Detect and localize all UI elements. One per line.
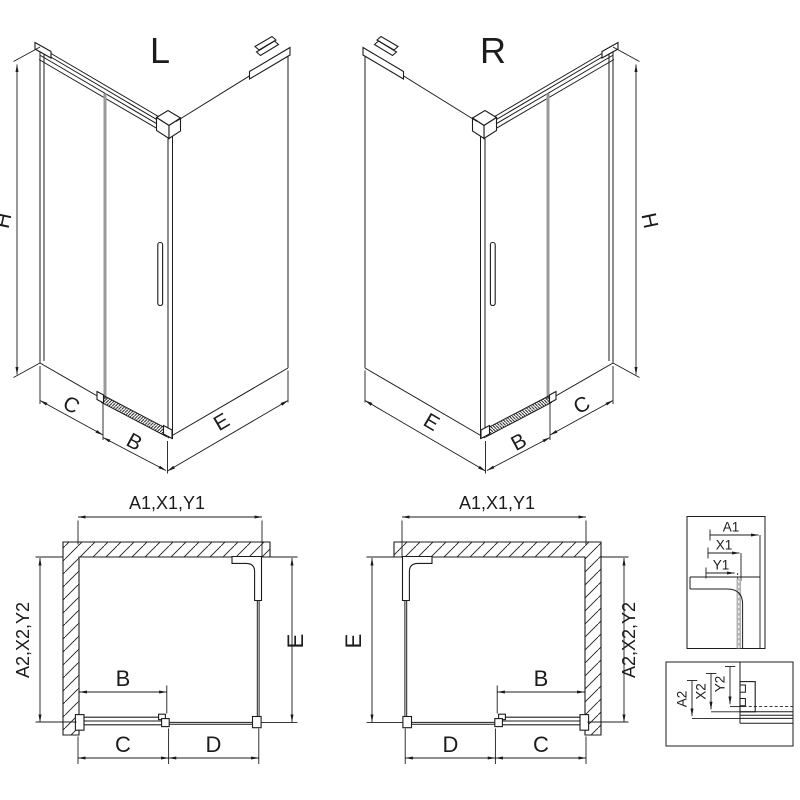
- iso-left-label: L: [150, 30, 170, 71]
- plan-right-e-label: E: [341, 634, 366, 649]
- rail-profile: [740, 682, 755, 712]
- detail-box-profile: A1 X1 Y1: [687, 517, 765, 649]
- dim-side-left: E: [210, 409, 234, 436]
- plan-view-right: A1,X1,Y1 A2,X2,Y2 E B C D: [341, 493, 639, 764]
- plan-left-width-label: A1,X1,Y1: [129, 493, 205, 513]
- detail-y1-label: Y1: [713, 558, 730, 573]
- plan-left-d-label: D: [206, 732, 222, 757]
- dim-door-left: B: [122, 429, 145, 456]
- iso-view-left: L H C B E: [0, 30, 290, 474]
- plan-left-e-label: E: [283, 634, 308, 649]
- detail-a1-label: A1: [723, 520, 740, 535]
- plan-right-depth-label: A2,X2,Y2: [619, 602, 639, 678]
- iso-right-label: R: [480, 30, 506, 71]
- plan-right-d-label: D: [443, 732, 459, 757]
- dim-panel-left: C: [59, 392, 83, 419]
- dim-height-left: H: [0, 211, 16, 231]
- plan-left-depth-label: A2,X2,Y2: [13, 602, 33, 678]
- plan-right-b-label: B: [534, 666, 549, 691]
- plan-view-left: A1,X1,Y1 A2,X2,Y2 E B C D: [13, 493, 308, 764]
- detail-x1-label: X1: [716, 538, 733, 553]
- detail-x2-label: X2: [694, 683, 709, 700]
- iso-view-right: R H C B E: [363, 30, 662, 474]
- dim-height-right: H: [637, 211, 663, 231]
- detail-a2-label: A2: [675, 691, 690, 708]
- shower-enclosure-technical-drawing: L H C B E R H C B E A1,X1,Y1 A2,X2,Y2 E …: [0, 0, 800, 800]
- detail-y2-label: Y2: [713, 676, 728, 693]
- detail-frame: [687, 517, 765, 649]
- detail-box-rail: A2 X2 Y2: [666, 662, 793, 746]
- dim-side-right: E: [419, 409, 443, 436]
- plan-left-c-label: C: [115, 732, 131, 757]
- dim-door-right: B: [507, 429, 530, 456]
- plan-right-width-label: A1,X1,Y1: [459, 493, 535, 513]
- plan-left-b-label: B: [116, 666, 131, 691]
- dim-panel-right: C: [570, 392, 594, 419]
- plan-right-c-label: C: [533, 732, 549, 757]
